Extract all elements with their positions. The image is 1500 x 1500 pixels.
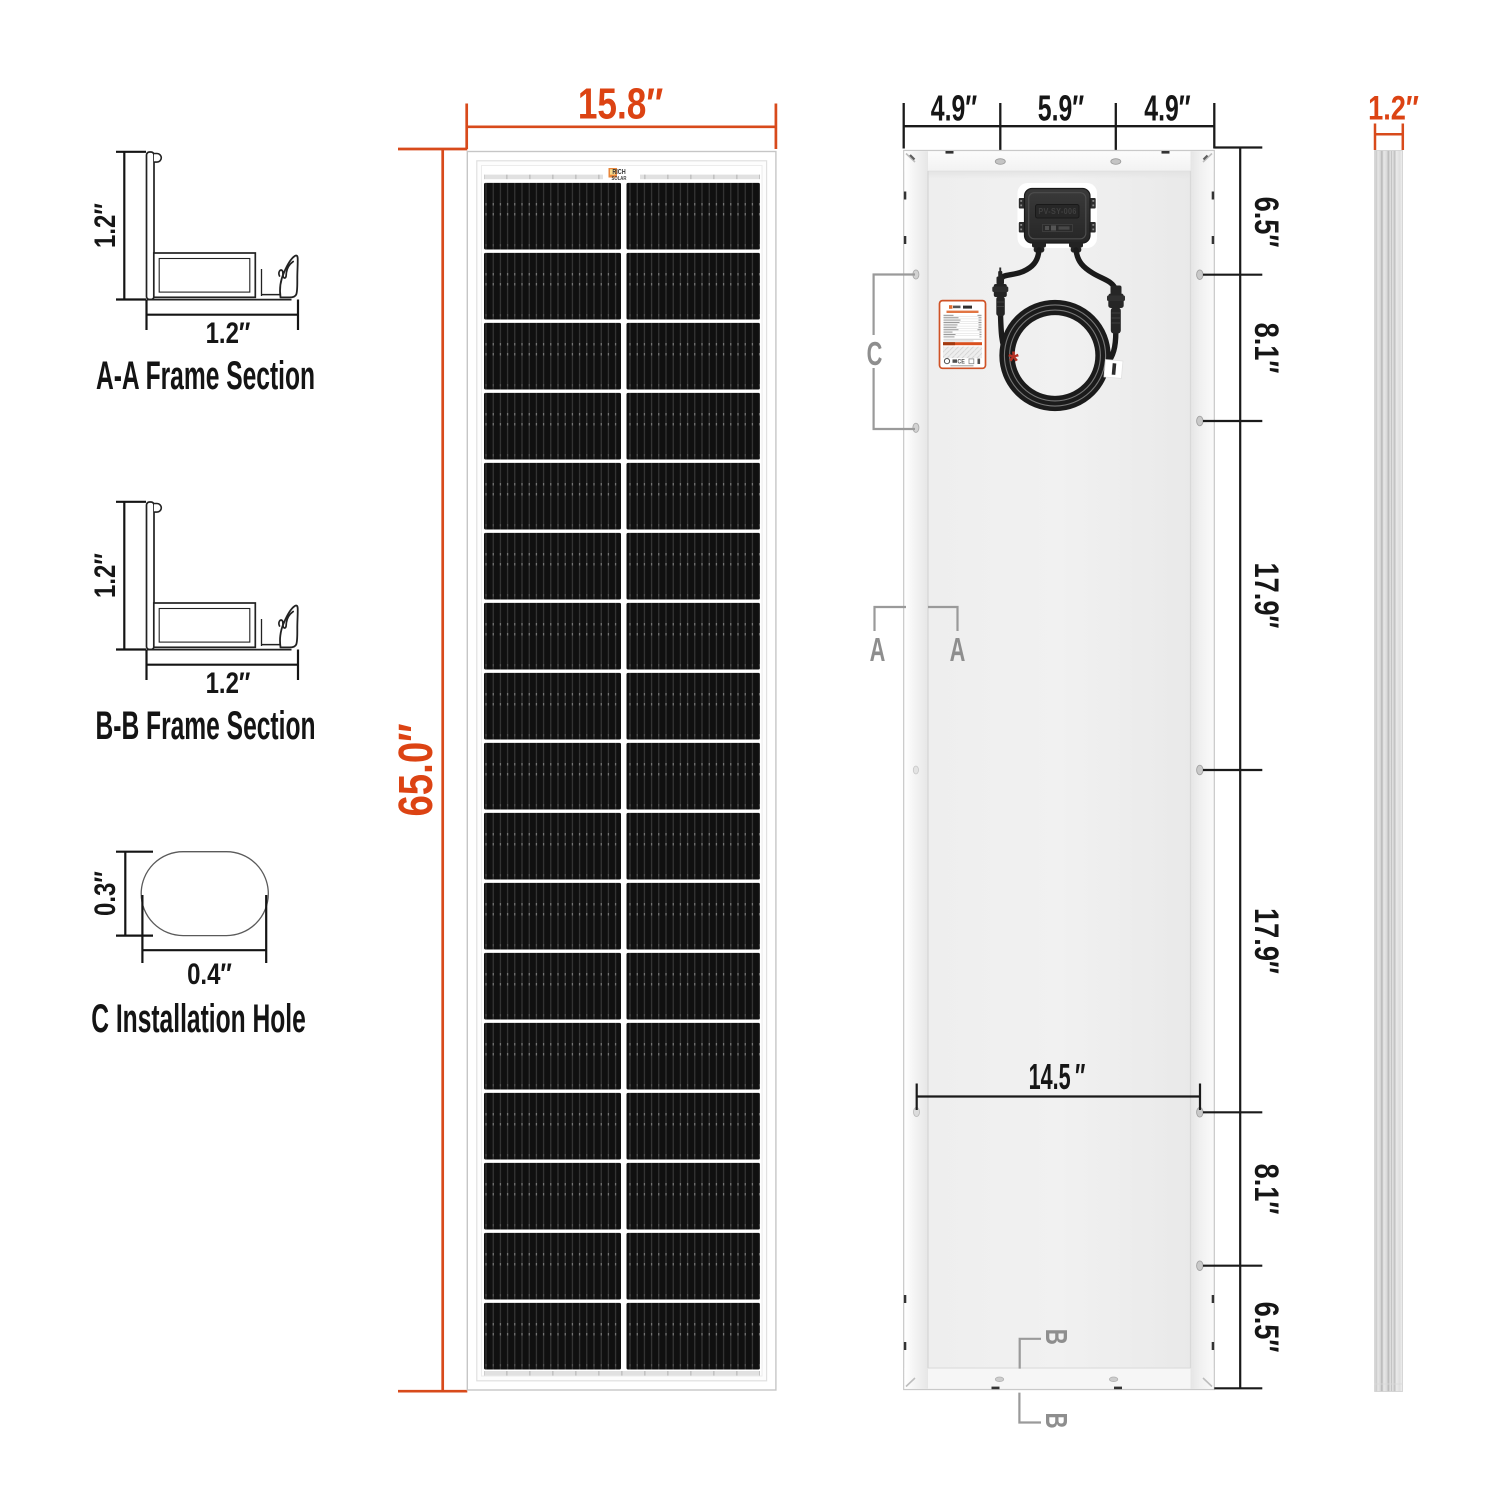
svg-text:CE: CE xyxy=(957,359,965,365)
svg-text:RICH: RICH xyxy=(612,168,626,176)
svg-text:A-A Frame Section: A-A Frame Section xyxy=(96,354,315,399)
svg-text:1.2″: 1.2″ xyxy=(87,553,121,598)
svg-text:B-B Frame Section: B-B Frame Section xyxy=(96,704,316,749)
svg-text:6.5″: 6.5″ xyxy=(1247,197,1286,248)
svg-text:4.9″: 4.9″ xyxy=(931,88,978,129)
svg-text:5.9″: 5.9″ xyxy=(1038,88,1085,129)
svg-text:C: C xyxy=(867,335,883,372)
svg-text:8.1″: 8.1″ xyxy=(1247,323,1286,374)
svg-text:*: * xyxy=(1008,346,1019,376)
svg-text:1.2″: 1.2″ xyxy=(206,665,251,699)
svg-text:65.0″: 65.0″ xyxy=(390,723,443,816)
svg-text:A: A xyxy=(950,631,966,668)
svg-text:SOLAR: SOLAR xyxy=(612,176,627,183)
svg-text:0.3″: 0.3″ xyxy=(87,871,121,916)
svg-text:B: B xyxy=(1039,1412,1073,1428)
svg-text:17.9″: 17.9″ xyxy=(1247,908,1286,974)
svg-text:15.8″: 15.8″ xyxy=(578,80,663,129)
svg-text:0.4″: 0.4″ xyxy=(187,956,232,990)
svg-text:C Installation Hole: C Installation Hole xyxy=(91,997,305,1042)
svg-text:PV-SY-006: PV-SY-006 xyxy=(1038,206,1077,216)
svg-text:4.9″: 4.9″ xyxy=(1144,88,1191,129)
svg-text:6.5″: 6.5″ xyxy=(1247,1302,1286,1353)
svg-text:A: A xyxy=(870,631,886,668)
svg-text:1.2″: 1.2″ xyxy=(87,203,121,248)
svg-text:1.2″: 1.2″ xyxy=(206,315,251,349)
svg-text:1.2″: 1.2″ xyxy=(1368,89,1419,128)
svg-text:8.1″: 8.1″ xyxy=(1247,1164,1286,1215)
svg-text:B: B xyxy=(1039,1329,1073,1345)
svg-text:17.9″: 17.9″ xyxy=(1247,563,1286,629)
svg-text:14.5 ″: 14.5 ″ xyxy=(1029,1057,1086,1097)
